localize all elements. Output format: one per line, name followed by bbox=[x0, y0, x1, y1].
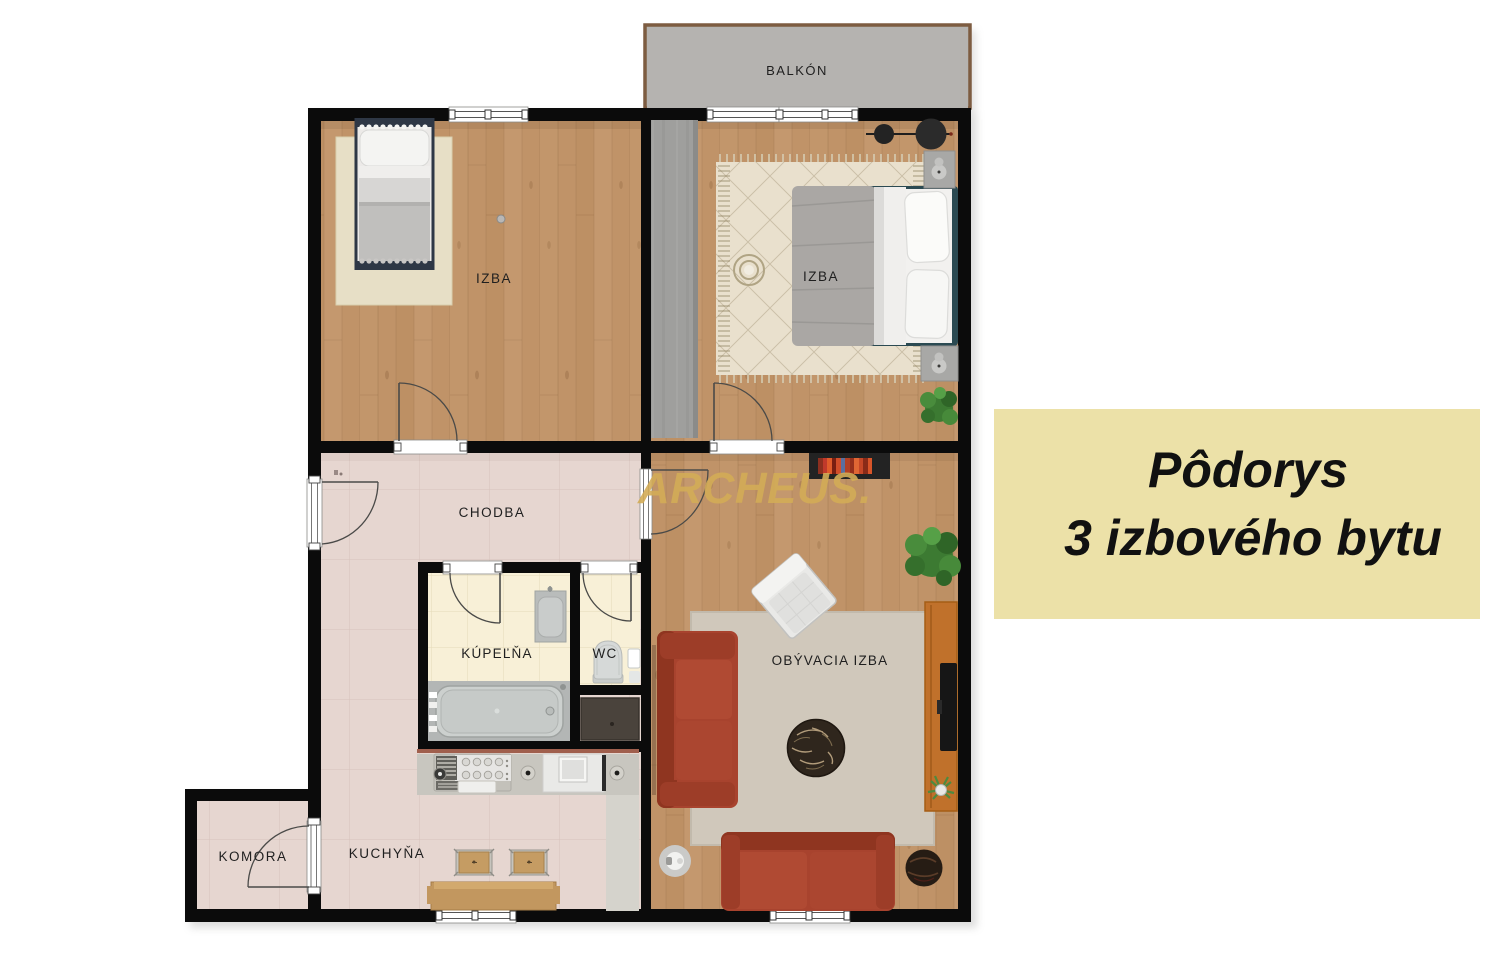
svg-text:ARCHEUS.: ARCHEUS. bbox=[637, 464, 872, 513]
svg-text:Pôdorys: Pôdorys bbox=[1148, 442, 1348, 498]
svg-text:CHODBA: CHODBA bbox=[459, 505, 526, 520]
svg-text:IZBA: IZBA bbox=[803, 269, 839, 284]
svg-text:KUCHYŇA: KUCHYŇA bbox=[349, 846, 426, 861]
svg-text:3 izbového bytu: 3 izbového bytu bbox=[1064, 510, 1442, 566]
svg-text:KOMORA: KOMORA bbox=[218, 849, 287, 864]
svg-text:BALKÓN: BALKÓN bbox=[766, 63, 828, 78]
svg-text:OBÝVACIA IZBA: OBÝVACIA IZBA bbox=[772, 653, 889, 668]
svg-text:KÚPEĽŇA: KÚPEĽŇA bbox=[461, 646, 532, 661]
svg-text:IZBA: IZBA bbox=[476, 271, 512, 286]
svg-text:WC: WC bbox=[593, 646, 618, 661]
